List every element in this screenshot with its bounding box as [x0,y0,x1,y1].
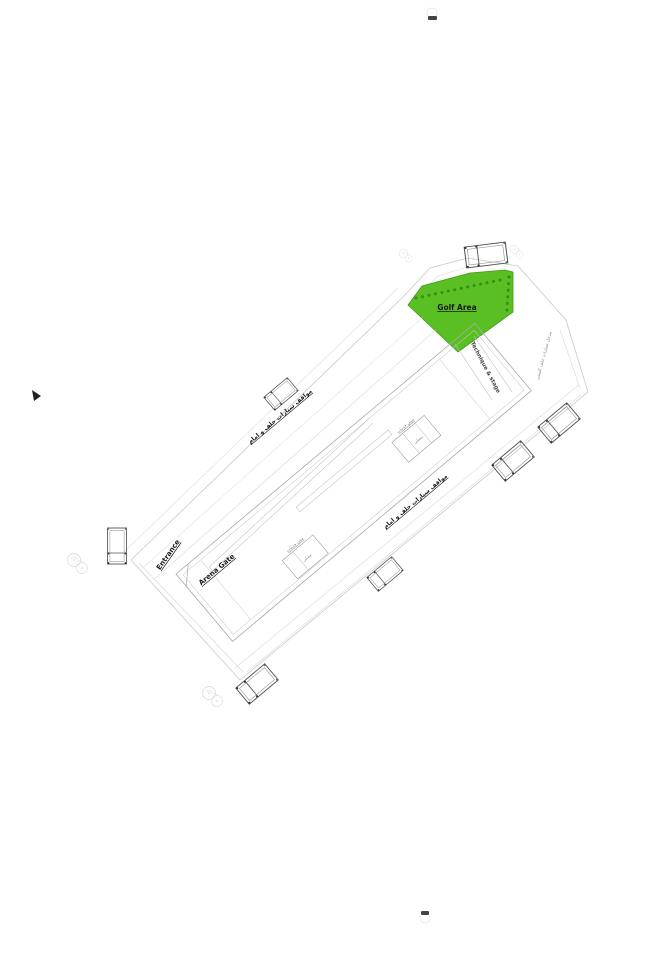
perimeter-road-label: مدخل سيارات خلف المبنى [536,330,554,380]
cursor-arrow-icon [32,390,41,401]
boundary-offset-e [560,330,580,388]
site-boundary [124,258,588,680]
truck-icon-center [367,557,403,592]
truck-icon-se-1 [492,441,534,481]
boundary-offset-w [139,563,243,672]
truck-icon-north [464,242,508,268]
structure-a-room-label: مصلى [413,434,424,444]
parking-label-nw: مواقف سيارات خلف و امام [247,388,314,446]
site-plan-drawing: مبنى خدمات مصلى مبنى خدمات مصلى مواقف سي… [0,0,663,960]
truck-icon-se-2 [538,403,580,443]
golf-area-label: Golf Area [437,303,476,312]
structure-b: مبنى خدمات مصلى [278,530,329,579]
truck-icon-west [108,528,127,564]
tree-icon-south [203,687,223,707]
page-mark-top [427,8,437,20]
entrance-lobby-divider [201,560,251,620]
tree-icon-west [68,554,88,574]
tree-icon-golf-right [510,245,523,258]
truck-icon-south [236,664,278,704]
page-mark-bottom [420,911,430,923]
structure-a: مبنى خدمات مصلى [387,410,440,462]
structure-b-room-label: مصلى [301,552,312,562]
entrance-corner-cut [176,564,199,587]
boundary-offset-se [247,395,581,672]
arena-building-inner-line [183,330,524,634]
central-platform [296,430,392,512]
nw-road-line-2 [133,317,430,569]
site-plan-canvas: مبنى خدمات مصلى مبنى خدمات مصلى مواقف سي… [0,0,663,960]
boundary-offset-nw [124,288,398,552]
page-mark-bottom-bar [421,911,429,915]
arena-building: مبنى خدمات مصلى مبنى خدمات مصلى مواقف سي… [121,254,579,677]
page-mark-top-bar [428,16,437,20]
tree-icon-golf-left [399,249,412,262]
